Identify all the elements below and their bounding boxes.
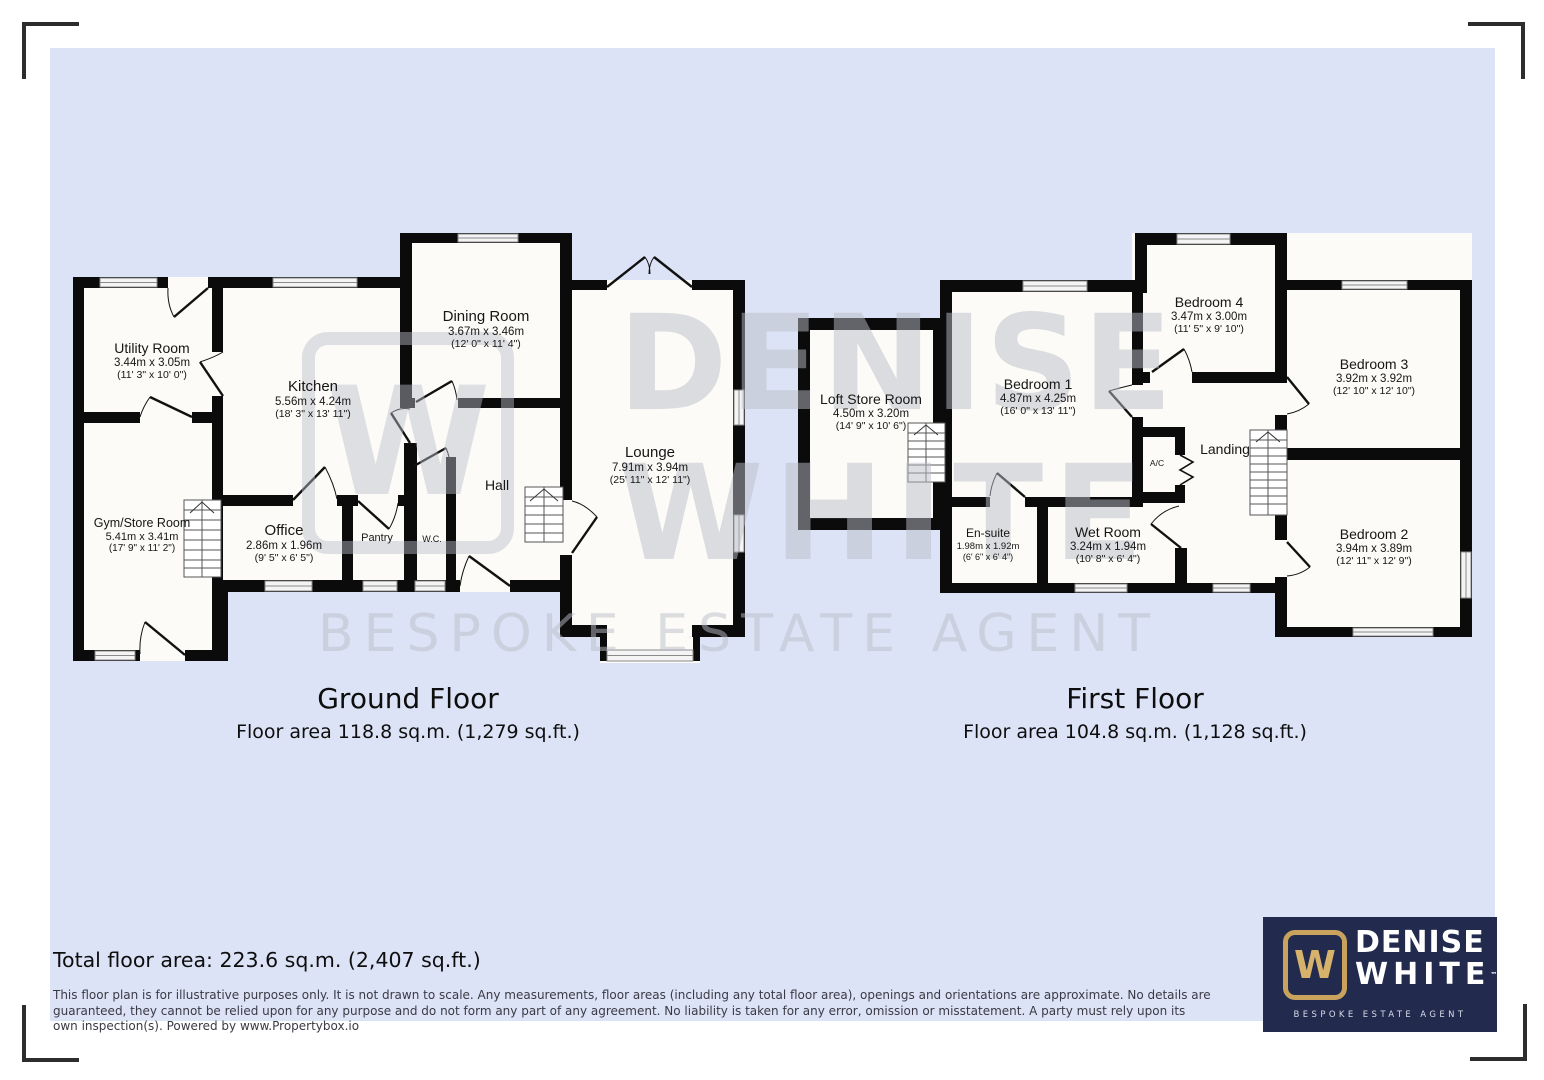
ground-floor-title: Ground Floor [317, 682, 499, 715]
ground-floor-area: Floor area 118.8 sq.m. (1,279 sq.ft.) [236, 721, 580, 743]
room-label-bedroom-3: Bedroom 3 3.92m x 3.92m (12' 10" x 12' 1… [1333, 356, 1415, 397]
room-label-loft-store: Loft Store Room 4.50m x 3.20m (14' 9" x … [820, 391, 922, 432]
first-floor-plan [798, 233, 1472, 637]
room-label-lounge: Lounge 7.91m x 3.94m (25' 11" x 12' 11") [610, 444, 691, 486]
room-label-ensuite: En-suite 1.98m x 1.92m (6' 6" x 6' 4") [957, 526, 1020, 562]
room-label-utility: Utility Room 3.44m x 3.05m (11' 3" x 10'… [114, 340, 190, 381]
room-label-hall: Hall [485, 477, 509, 493]
watermark-brand-emblem: W [302, 332, 514, 554]
logo-tagline: BESPOKE ESTATE AGENT [1263, 1010, 1497, 1020]
room-label-gym-store: Gym/Store Room 5.41m x 3.41m (17' 9" x 1… [94, 516, 191, 554]
room-label-wc: W.C. [422, 534, 442, 544]
trademark-symbol: ™ [1490, 971, 1497, 979]
agency-logo: W DENISE WHITE™ BESPOKE ESTATE AGENT [1263, 917, 1497, 1032]
logo-w-icon: W [1283, 930, 1347, 1000]
room-label-pantry: Pantry [361, 532, 393, 544]
logo-name-line1: DENISE [1355, 927, 1497, 959]
disclaimer-text: This floor plan is for illustrative purp… [53, 988, 1213, 1035]
logo-name-line2: WHITE™ [1355, 959, 1497, 991]
room-label-ac: A/C [1150, 458, 1164, 468]
room-label-landing: Landing [1200, 441, 1250, 457]
first-floor-title: First Floor [1066, 682, 1203, 715]
room-label-bedroom-1: Bedroom 1 4.87m x 4.25m (16' 0" x 13' 11… [1000, 376, 1076, 417]
room-label-dining: Dining Room 3.67m x 3.46m (12' 0" x 11' … [443, 308, 530, 350]
room-label-bedroom-4: Bedroom 4 3.47m x 3.00m (11' 5" x 9' 10"… [1171, 294, 1247, 335]
room-label-office: Office 2.86m x 1.96m (9' 5" x 6' 5") [246, 522, 322, 564]
total-floor-area: Total floor area: 223.6 sq.m. (2,407 sq.… [53, 948, 481, 972]
first-floor-area: Floor area 104.8 sq.m. (1,128 sq.ft.) [963, 721, 1307, 743]
room-label-kitchen: Kitchen 5.56m x 4.24m (18' 3" x 13' 11") [275, 378, 351, 420]
logo-name: DENISE WHITE™ [1355, 927, 1497, 991]
room-label-wetroom: Wet Room 3.24m x 1.94m (10' 8" x 6' 4") [1070, 524, 1146, 565]
room-label-bedroom-2: Bedroom 2 3.94m x 3.89m (12' 11" x 12' 9… [1336, 526, 1412, 567]
